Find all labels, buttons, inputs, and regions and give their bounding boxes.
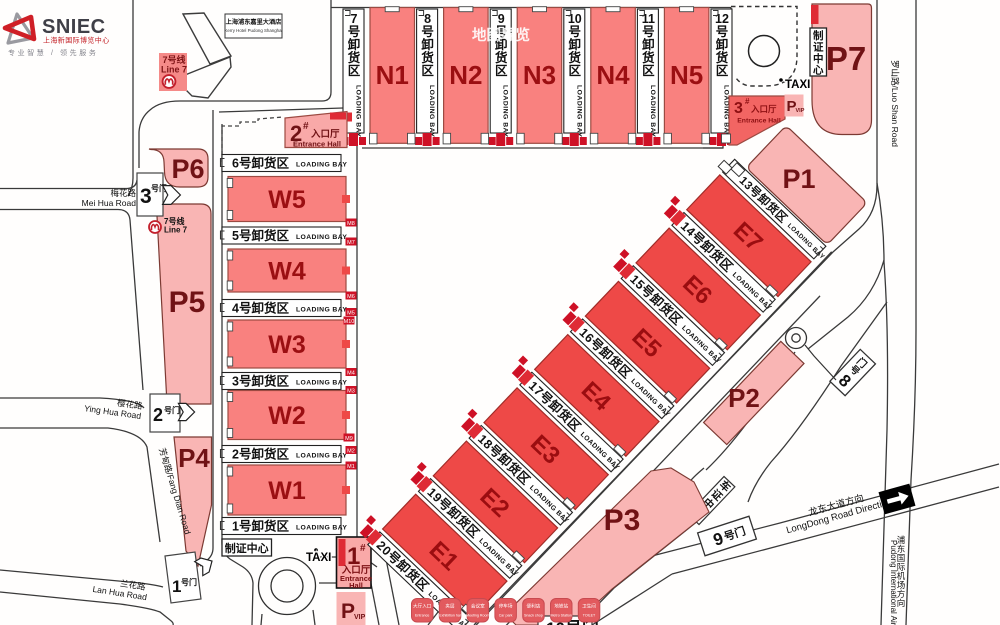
svg-text:LOADING BAY: LOADING BAY — [428, 85, 435, 137]
svg-text:#: # — [303, 121, 309, 132]
svg-text:12号卸货区: 12号卸货区 — [715, 12, 729, 78]
svg-text:LOADING BAY: LOADING BAY — [296, 162, 347, 169]
svg-text:11号卸货区: 11号卸货区 — [642, 12, 655, 78]
svg-text:LOADING BAY: LOADING BAY — [296, 307, 347, 314]
svg-text:P1: P1 — [782, 164, 815, 194]
svg-text:入口厅: 入口厅 — [750, 104, 777, 114]
svg-text:制证中心: 制证中心 — [225, 541, 269, 555]
svg-text:Mei Hua Road: Mei Hua Road — [82, 198, 137, 208]
svg-text:Line 7: Line 7 — [164, 226, 188, 235]
svg-text:上海浦东嘉里大酒店: 上海浦东嘉里大酒店 — [226, 18, 282, 26]
svg-text:LOADING BAY: LOADING BAY — [296, 380, 347, 387]
svg-text:大厅入口: 大厅入口 — [413, 603, 432, 610]
svg-text:Snack shop: Snack shop — [524, 614, 543, 618]
svg-text:Entrance Hall: Entrance Hall — [737, 118, 781, 125]
svg-text:2号卸货区: 2号卸货区 — [232, 447, 289, 462]
svg-text:LOADING BAY: LOADING BAY — [502, 85, 509, 137]
svg-text:P3: P3 — [604, 504, 641, 537]
svg-text:M7: M7 — [347, 240, 355, 246]
svg-text:号门: 号门 — [164, 405, 180, 415]
svg-text:M9: M9 — [345, 436, 353, 442]
svg-text:M6: M6 — [347, 294, 355, 300]
svg-text:VIP: VIP — [354, 614, 366, 621]
svg-text:Kerry Hotel Pudong Shanghai: Kerry Hotel Pudong Shanghai — [224, 28, 282, 33]
svg-text:P5: P5 — [169, 286, 206, 319]
svg-text:LOADING BAY: LOADING BAY — [296, 525, 347, 532]
svg-text:P2: P2 — [728, 383, 760, 413]
svg-text:SNIEC: SNIEC — [42, 16, 106, 38]
svg-text:P4: P4 — [178, 443, 210, 473]
svg-text:7号线: 7号线 — [164, 216, 184, 226]
svg-text:5号卸货区: 5号卸货区 — [232, 228, 289, 243]
svg-text:Hall: Hall — [349, 581, 363, 590]
svg-text:卫生间: 卫生间 — [582, 603, 596, 610]
svg-text:VIP: VIP — [796, 108, 805, 114]
svg-text:N2: N2 — [449, 60, 482, 90]
svg-text:M8: M8 — [347, 221, 355, 227]
svg-text:W3: W3 — [268, 331, 306, 359]
svg-text:N4: N4 — [596, 60, 630, 90]
svg-text:W4: W4 — [268, 258, 306, 286]
svg-text:Line 7: Line 7 — [161, 65, 187, 75]
svg-text:梅花路: 梅花路 — [110, 188, 136, 198]
svg-text:M4: M4 — [347, 370, 355, 376]
svg-text:号门: 号门 — [181, 577, 197, 587]
svg-text:W2: W2 — [268, 402, 306, 430]
svg-text:P: P — [341, 600, 355, 623]
svg-text:3: 3 — [140, 185, 152, 208]
svg-text:M3: M3 — [347, 388, 355, 394]
svg-text:入口厅: 入口厅 — [310, 129, 340, 140]
svg-text:上海新国际博览中心: 上海新国际博览中心 — [43, 36, 110, 45]
svg-text:3号卸货区: 3号卸货区 — [232, 374, 289, 389]
svg-text:Exhibition hal: Exhibition hal — [439, 614, 461, 618]
svg-text:地图导览: 地图导览 — [472, 26, 530, 44]
svg-text:3: 3 — [734, 100, 743, 117]
svg-text:TAXI: TAXI — [785, 79, 810, 91]
svg-text:罗山路/Luo Shan Road: 罗山路/Luo Shan Road — [890, 60, 900, 147]
svg-text:TOILET: TOILET — [583, 614, 596, 618]
svg-text:W5: W5 — [268, 186, 306, 214]
svg-text:#: # — [360, 543, 366, 554]
svg-text:停车场: 停车场 — [499, 603, 513, 610]
svg-text:LOADING BAY: LOADING BAY — [575, 85, 582, 137]
svg-text:N5: N5 — [670, 60, 703, 90]
svg-text:专业智慧 / 领先服务: 专业智慧 / 领先服务 — [8, 48, 98, 57]
svg-text:M5: M5 — [347, 310, 355, 316]
svg-text:P7: P7 — [826, 40, 866, 77]
svg-text:Entrance: Entrance — [415, 614, 429, 618]
svg-text:LOADING BAY: LOADING BAY — [296, 234, 347, 241]
svg-text:Metro Station: Metro Station — [551, 614, 572, 618]
svg-text:W1: W1 — [268, 477, 306, 505]
svg-text:6号卸货区: 6号卸货区 — [232, 156, 289, 171]
svg-text:Car park: Car park — [499, 614, 513, 618]
svg-text:会议室: 会议室 — [471, 603, 485, 610]
svg-text:制证中心: 制证中心 — [813, 29, 824, 77]
svg-text:M10: M10 — [344, 319, 355, 325]
svg-text:7号线: 7号线 — [162, 54, 185, 65]
svg-text:M2: M2 — [347, 448, 355, 454]
svg-text:夹层: 夹层 — [445, 603, 455, 610]
svg-text:LOADING BAY: LOADING BAY — [296, 453, 347, 460]
svg-text:便利店: 便利店 — [527, 603, 541, 610]
svg-text:LOADING BAY: LOADING BAY — [355, 85, 362, 137]
svg-text:地铁站: 地铁站 — [554, 603, 568, 610]
svg-text:M1: M1 — [347, 464, 355, 470]
svg-text:1号卸货区: 1号卸货区 — [232, 519, 289, 534]
svg-text:浦东国际机场方向: 浦东国际机场方向 — [897, 535, 906, 608]
svg-text:N1: N1 — [376, 60, 409, 90]
svg-text:TAXI: TAXI — [306, 552, 331, 564]
svg-text:LOADING BAY: LOADING BAY — [649, 85, 656, 137]
svg-text:Entrance Hall: Entrance Hall — [293, 140, 341, 149]
svg-text:N3: N3 — [523, 60, 556, 90]
svg-text:2: 2 — [153, 405, 163, 425]
svg-text:#: # — [745, 97, 750, 106]
svg-text:10号卸货区: 10号卸货区 — [568, 12, 582, 78]
svg-text:4号卸货区: 4号卸货区 — [232, 301, 289, 316]
svg-text:Meeting Room: Meeting Room — [466, 614, 489, 618]
svg-text:P6: P6 — [171, 154, 204, 184]
